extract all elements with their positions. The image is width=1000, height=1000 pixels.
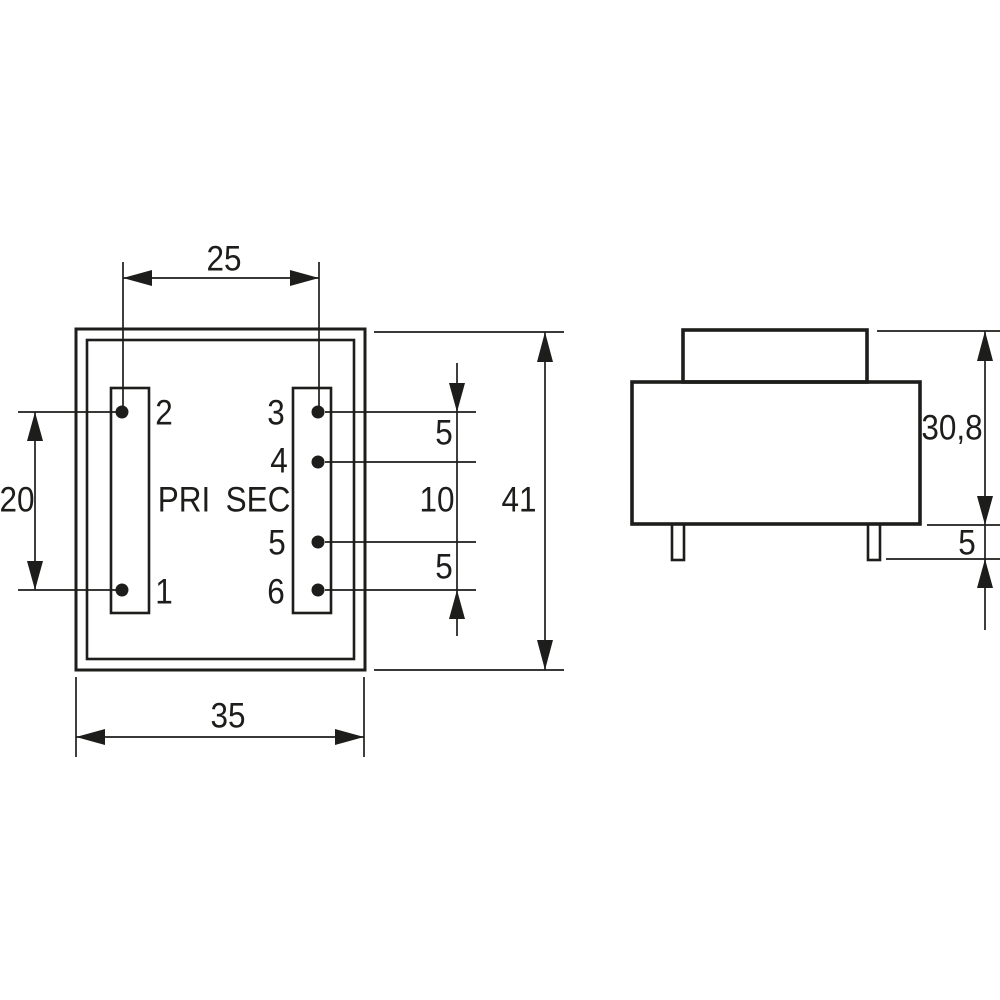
dim-label-pin-length-5: 5 xyxy=(958,526,976,561)
pin-label-2: 2 xyxy=(155,396,173,431)
pri-label: PRI xyxy=(158,483,211,518)
arrowhead-up-pin xyxy=(977,559,993,588)
drawing-canvas: 25 20 35 41 5 10 5 2 1 3 4 5 6 PRI SEC 3… xyxy=(0,0,1000,1000)
pin-2-dot xyxy=(116,406,129,419)
pin-label-3: 3 xyxy=(267,396,285,431)
side-view-left-pin xyxy=(672,524,684,560)
side-view-top-bobbin xyxy=(683,330,867,382)
arrowhead-left xyxy=(76,729,105,745)
arrowhead-up xyxy=(27,412,43,441)
pin-label-6: 6 xyxy=(267,575,285,610)
dim-label-20: 20 xyxy=(0,483,35,518)
dim-label-body-height-30-8: 30,8 xyxy=(921,411,982,446)
arrowhead-down xyxy=(449,383,465,412)
side-view-body xyxy=(632,382,920,524)
dimension-25 xyxy=(123,262,319,407)
pin-label-1: 1 xyxy=(155,575,173,610)
drawing-linework xyxy=(0,0,1000,1000)
arrowhead-down xyxy=(537,640,553,670)
side-view xyxy=(632,330,920,560)
arrowhead-up xyxy=(449,590,465,619)
top-view xyxy=(76,329,365,670)
pin-3-dot xyxy=(312,406,325,419)
dim-label-sec-5-top: 5 xyxy=(435,416,453,451)
sec-label: SEC xyxy=(226,483,291,518)
arrowhead-right xyxy=(335,729,364,745)
pin-5-dot xyxy=(312,536,325,549)
pin-label-5: 5 xyxy=(268,526,286,561)
arrowhead-left xyxy=(123,270,152,286)
dim-label-sec-10: 10 xyxy=(419,483,454,518)
pin-6-dot xyxy=(312,584,325,597)
dim-label-25: 25 xyxy=(206,242,241,277)
dim-label-35: 35 xyxy=(210,699,245,734)
dimension-side-heights xyxy=(877,331,1000,630)
sec-pin-slot xyxy=(293,388,331,613)
dim-label-41: 41 xyxy=(501,483,536,518)
arrowhead-up xyxy=(977,331,993,361)
arrowhead-down xyxy=(27,561,43,590)
dim-label-sec-5-bottom: 5 xyxy=(435,550,453,585)
top-view-outer-outline xyxy=(76,329,365,670)
arrowhead-right xyxy=(290,270,319,286)
pin-4-dot xyxy=(312,456,325,469)
pri-pin-slot xyxy=(111,388,149,613)
pin-label-4: 4 xyxy=(270,444,288,479)
arrowhead-down xyxy=(977,496,993,525)
arrowhead-up xyxy=(537,332,553,362)
pin-1-dot xyxy=(116,584,129,597)
side-view-right-pin xyxy=(868,524,880,560)
